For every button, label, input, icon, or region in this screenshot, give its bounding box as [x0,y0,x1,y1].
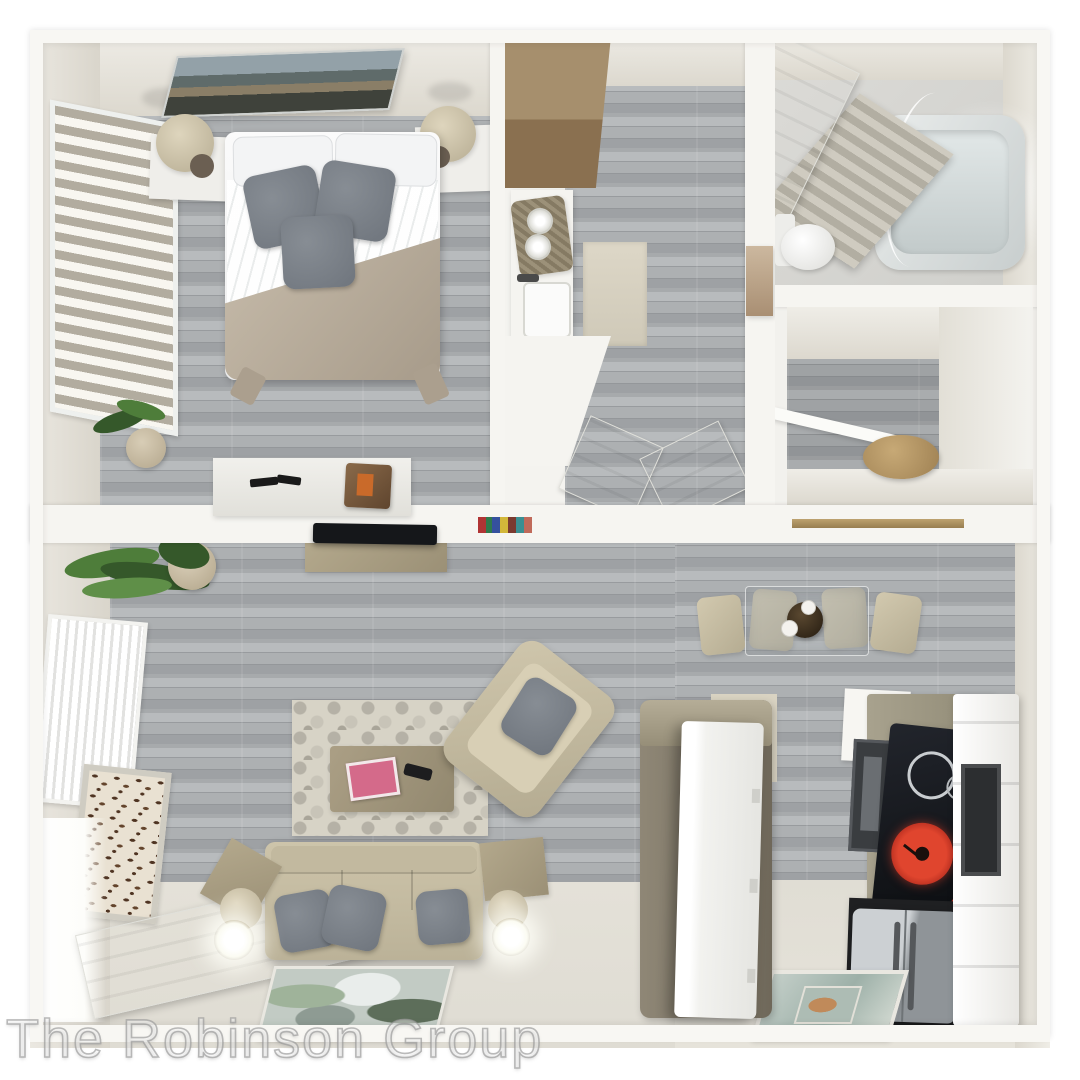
dining-chair-1 [696,594,746,656]
island-door-hinge-2 [749,879,757,893]
sconce-shadow-right [428,82,472,102]
floorplan-image: The Robinson Group [0,0,1080,1080]
hall-wall-painting [746,246,773,316]
island-door [674,721,764,1019]
floor-lamp-left-glow [214,920,254,960]
bedroom [30,30,505,505]
lamp-left-base [190,154,214,178]
toilet-bowl [781,224,835,270]
sink [523,282,571,338]
centerpiece-plate-1 [781,620,798,637]
kitchen-right-wall-face [1015,542,1050,1048]
sofa-back [271,846,477,874]
wall-oven-column [953,694,1019,1026]
bedroom-plant-pot [126,428,166,468]
kitchen-mat-art [794,986,863,1024]
closet-shelf-right [939,307,1033,469]
desk-glasses [250,477,279,488]
sofa-pillow-3 [415,888,472,946]
sink-faucet [517,274,539,282]
bedroom-wall-art [161,48,405,118]
magazines [346,757,401,802]
centerpiece-plate-2 [801,600,816,615]
sofa [265,842,483,960]
dining-chair-4 [869,591,923,655]
island-partition [640,700,772,1018]
microwave-window [860,756,882,831]
closet-top-wall [775,285,1045,307]
hallway [505,30,775,505]
tv-console [305,542,447,572]
middle-divider-wall [30,505,1050,543]
desk-glasses-2 [277,474,302,485]
towel-roll-1 [527,208,553,234]
bedroom-right-wall [490,30,505,505]
sofa-pillow-2 [319,883,388,954]
closet-basket [863,435,939,479]
walk-in-closet [775,285,1045,505]
throw-pillow-3 [280,214,356,290]
hallway-runner-rug [583,242,647,346]
bedroom-desk [213,458,411,516]
desk-box-accent [356,473,373,496]
fridge-handle-right [907,922,916,1010]
tv [313,523,437,545]
bathroom [775,30,1045,285]
island-door-hinge-1 [752,789,760,803]
book-row [478,517,532,533]
coffee-table [330,746,454,812]
island-door-hinge-3 [747,969,755,983]
remote-control [403,763,433,781]
watermark-text: The Robinson Group [6,1008,543,1070]
wall-oven-window [961,764,1001,876]
desk-box [344,463,392,509]
fridge-door-split [901,910,907,1022]
sofa-seat-line-2 [411,870,413,910]
laundry-wood-cabinet [505,36,611,188]
red-burner [888,820,956,888]
floor-lamp-right-glow [492,918,530,956]
living-room [30,542,675,1048]
towel-roll-2 [525,234,551,260]
wood-ledge [792,519,964,528]
